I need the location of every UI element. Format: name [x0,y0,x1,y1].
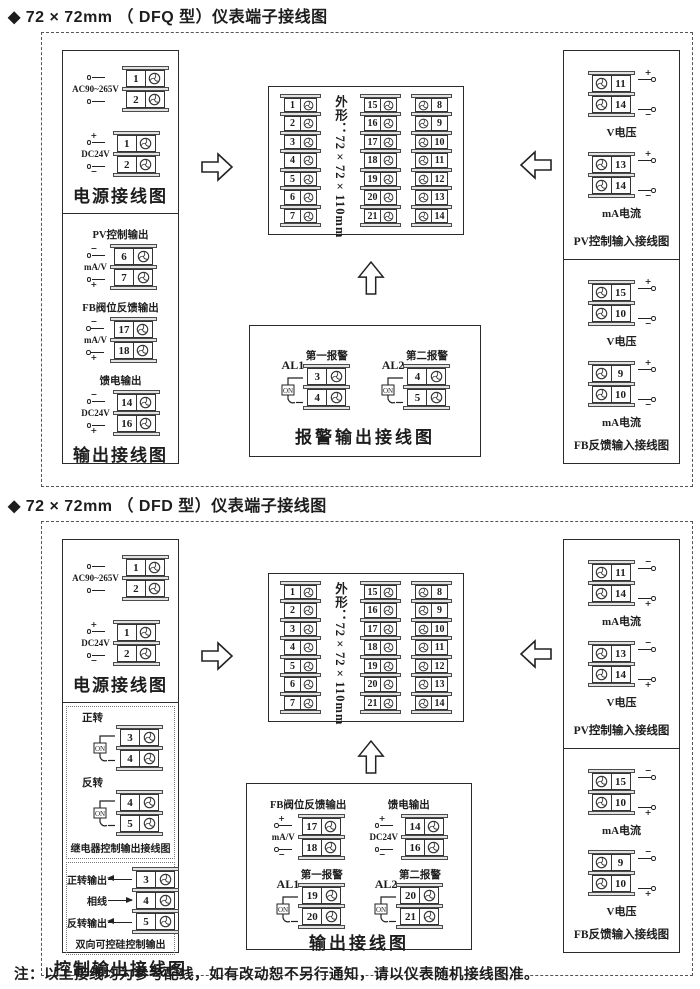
polarity-terminal-icon: − [87,249,105,261]
wiring-group: 910+−mA电流 [588,361,656,430]
screw-terminal-icon [380,153,397,168]
screw-terminal-icon [300,116,317,131]
terminal-end-bar [588,683,635,687]
terminal-cell: 13 [415,677,448,692]
polarity-mark: + [379,815,386,823]
right-panel: 1114−+mA电流1314−+V电压PV控制输入接线图 1510−+mA电流9… [563,539,680,953]
screw-terminal-icon [145,91,165,108]
polarity-terminal-icon: + [638,882,656,894]
terminal-number: 2 [284,603,301,618]
wiring-group: 1114−+mA电流 [588,560,656,629]
alarm-name: AL1 [277,877,300,892]
screw-terminal-icon [300,190,317,205]
terminal-cell: 8 [415,585,448,600]
arrow-left-icon [519,149,553,181]
terminal-cell: 1 [117,135,156,152]
screw-terminal-icon [415,190,432,205]
arrow-up-icon [356,738,386,776]
group-title: 正转 [82,710,103,725]
screw-terminal-icon [136,394,156,411]
screw-terminal-icon [321,839,341,856]
section-frame: AC90~265V12+DC24V−12电源接线图 正转ON34反转ON45继电… [41,521,693,976]
screw-terminal-icon [139,794,159,811]
terminal-cell: 10 [592,386,631,403]
group-caption: V电压 [607,694,637,710]
svg-text:ON: ON [376,906,386,914]
terminal-number: 9 [431,603,448,618]
panel-caption: 电源接线图 [73,182,168,207]
relay-group: 正转ON34 [78,710,163,771]
screw-terminal-icon [136,624,156,641]
group-title: PV控制输出 [93,227,149,242]
polarity-mark: + [645,809,652,817]
terminal-number: 2 [117,156,137,173]
terminal-block: 2021 [396,883,443,929]
polarity-terminal-icon [87,560,105,572]
terminal-block: 34 [303,364,350,410]
group-label: DC24V [81,638,110,648]
power-wiring-panel: AC90~265V12+DC24V−12电源接线图 [63,540,178,703]
screw-terminal-icon [155,913,175,930]
terminal-cell: 16 [364,116,397,131]
terminal-cell: 5 [284,659,317,674]
polarity-mark: − [645,848,652,856]
polarity-terminal-icon [87,95,105,107]
polarity-mark: + [645,150,652,158]
terminal-number: 18 [114,342,134,359]
terminal-end-bar [303,406,350,410]
terminal-number: 14 [611,96,631,113]
terminal-cell: 2 [284,603,317,618]
terminal-cell: 3 [120,729,159,746]
terminal-end-bar [588,892,635,896]
screw-terminal-icon [139,750,159,767]
arrow-right-icon [108,900,132,901]
terminal-cell: 1 [284,585,317,600]
terminal-number: 1 [284,585,301,600]
wiring-group: 1510+−V电压 [588,280,656,349]
terminal-cell: 14 [592,666,631,683]
terminal-number: 20 [302,908,322,925]
on-switch-icon: ON [380,374,404,407]
terminal-cell: 2 [126,91,165,108]
scr-label: 正转输出 [67,872,107,887]
screw-terminal-icon [133,321,153,338]
terminal-cell: 4 [307,389,346,406]
terminal-number: 17 [114,321,134,338]
screw-terminal-icon [592,564,612,581]
terminal-cell: 14 [592,585,631,602]
terminal-number: 17 [364,622,381,637]
screw-terminal-icon [380,172,397,187]
terminal-number: 14 [405,818,425,835]
polarity-mark: − [91,657,98,665]
screw-terminal-icon [380,622,397,637]
terminal-cell: 11 [415,153,448,168]
terminal-number: 10 [611,875,631,892]
screw-terminal-icon [426,368,446,385]
terminal-layout-block: 1234567外形：72×72×110mm1516171819202189101… [268,86,464,235]
terminal-cell: 11 [592,564,631,581]
polarity-terminal-icon: − [87,160,105,172]
terminal-cell: 21 [364,209,397,224]
terminal-block: 1234567 [280,581,321,715]
terminal-block: 15161718192021 [360,94,401,228]
terminal-cell: 9 [592,854,631,871]
screw-terminal-icon [380,659,397,674]
polarity-terminal-icon: + [638,801,656,813]
terminal-cell: 5 [136,913,175,930]
wiring-group: FB阀位反馈输出+mA/V−1718 [270,797,346,860]
screw-terminal-icon [145,70,165,87]
terminal-cell: 3 [284,622,317,637]
panel-caption: 电源接线图 [73,671,168,696]
wiring-group: 1114+−V电压 [588,71,656,140]
panel-caption: 继电器控制输出接线图 [71,840,171,855]
terminal-number: 16 [405,839,425,856]
arrow-left-icon [519,638,553,670]
terminal-cell: 13 [415,190,448,205]
alarm-name: AL1 [282,358,305,373]
group-title: 第二报警 [399,867,441,882]
terminal-number: 4 [284,640,301,655]
group-title: 反转 [82,775,103,790]
polarity-terminal-icon: − [87,649,105,661]
screw-terminal-icon [592,773,612,790]
terminal-end-bar [411,223,452,227]
terminal-cell: 21 [400,908,439,925]
section-dfd: ◆ 72 × 72mm （ DFD 型）仪表端子接线图 AC90~265V12+… [0,492,700,976]
terminal-number: 2 [117,645,137,662]
screw-terminal-icon [592,75,612,92]
terminal-cell: 7 [284,209,317,224]
terminal-cell: 6 [114,248,153,265]
terminal-number: 7 [114,269,134,286]
screw-terminal-icon [300,209,317,224]
terminal-block: 891011121314 [411,94,452,228]
panel-caption: 输出接线图 [309,929,409,954]
terminal-number: 16 [364,116,381,131]
screw-terminal-icon [415,135,432,150]
screw-terminal-icon [136,135,156,152]
on-switch-icon: ON [373,893,397,926]
polarity-terminal-icon: + [87,273,105,285]
screw-terminal-icon [139,729,159,746]
output-wiring-box: FB阀位反馈输出+mA/V−1718馈电输出+DC24V−1416AL1ON第一… [246,783,472,950]
panel-caption: 输出接线图 [73,441,168,466]
section-title: ◆ 72 × 72mm （ DFQ 型）仪表端子接线图 [8,3,700,27]
wiring-group: 1314+−mA电流 [588,152,656,221]
terminal-end-bar [403,406,450,410]
screw-terminal-icon [415,640,432,655]
right-panel: 1114+−V电压1314+−mA电流PV控制输入接线图 1510+−V电压91… [563,50,680,464]
terminal-number: 19 [364,659,381,674]
terminal-block: 1718 [298,814,345,860]
terminal-number: 1 [126,559,146,576]
terminal-end-bar [588,602,635,606]
polarity-mark: − [645,111,652,119]
terminal-number: 11 [611,564,631,581]
terminal-number: 13 [431,677,448,692]
terminal-cell: 6 [284,677,317,692]
terminal-cell: 10 [592,305,631,322]
scr-row: 相线 [62,893,132,908]
relay-output-subbox: 正转ON34反转ON45继电器控制输出接线图 [66,706,175,859]
screw-terminal-icon [415,603,432,618]
fb-input-panel: 1510+−V电压910+−mA电流FB反馈输入接线图 [564,260,679,463]
terminal-end-bar [360,223,401,227]
terminal-cell: 2 [117,645,156,662]
group-label: DC24V [81,408,110,418]
group-caption: V电压 [607,124,637,140]
terminal-number: 10 [611,305,631,322]
terminal-cell: 10 [592,875,631,892]
terminal-number: 11 [431,640,448,655]
terminal-number: 4 [407,368,427,385]
polarity-mark: + [645,681,652,689]
polarity-mark: − [91,391,98,399]
terminal-number: 14 [611,585,631,602]
terminal-end-bar [122,597,169,601]
terminal-number: 9 [431,116,448,131]
terminal-number: 10 [431,135,448,150]
terminal-cell: 8 [415,98,448,113]
terminal-block: 45 [403,364,450,410]
terminal-cell: 14 [117,394,156,411]
terminal-cell: 1 [117,624,156,641]
screw-terminal-icon [380,98,397,113]
terminal-block: 345 [132,867,179,934]
terminal-number: 20 [400,887,420,904]
polarity-terminal-icon: + [638,673,656,685]
terminal-block: 1920 [298,883,345,929]
terminal-number: 5 [284,172,301,187]
wiring-group: FB阀位反馈输出−mA/V+1718 [82,300,158,363]
polarity-mark: − [90,318,97,326]
group-title: 第一报警 [301,867,343,882]
wiring-group: AC90~265V12 [72,66,169,112]
screw-terminal-icon [380,209,397,224]
terminal-number: 14 [431,696,448,711]
terminal-cell: 9 [592,365,631,382]
svg-text:ON: ON [95,745,105,753]
scr-row: 正转输出 [62,872,132,887]
terminal-number: 8 [431,585,448,600]
terminal-end-bar [588,403,635,407]
screw-terminal-icon [380,696,397,711]
terminal-cell: 10 [415,135,448,150]
power-wiring-panel: AC90~265V12+DC24V−12电源接线图 [63,51,178,214]
terminal-cell: 5 [284,172,317,187]
shape-size-label: 外形：72×72×110mm [331,95,350,227]
terminal-end-bar [411,710,452,714]
group-caption: V电压 [607,903,637,919]
screw-terminal-icon [592,645,612,662]
screw-terminal-icon [133,342,153,359]
terminal-number: 19 [302,887,322,904]
polarity-mark: + [91,281,98,289]
terminal-number: 4 [120,794,140,811]
screw-terminal-icon [415,153,432,168]
polarity-terminal-icon: − [638,562,656,574]
terminal-cell: 1 [126,70,165,87]
screw-terminal-icon [380,640,397,655]
terminal-number: 16 [117,415,137,432]
terminal-number: 3 [120,729,140,746]
terminal-number: 4 [120,750,140,767]
screw-terminal-icon [136,156,156,173]
terminal-block: 1314 [588,641,635,687]
terminal-block: 12 [113,131,160,177]
polarity-terminal-icon: − [86,322,104,334]
polarity-mark: − [645,558,652,566]
section-title: ◆ 72 × 72mm （ DFD 型）仪表端子接线图 [8,492,700,516]
terminal-cell: 5 [407,389,446,406]
terminal-block: 34 [116,725,163,771]
screw-terminal-icon [592,96,612,113]
footer-note: 注：以上接线均为参考配线，如有改动恕不另行通知，请以仪表随机接线图准。 [14,963,539,984]
group-label: mA/V [84,262,107,272]
screw-terminal-icon [592,365,612,382]
screw-terminal-icon [300,603,317,618]
wiring-group: 1314−+V电压 [588,641,656,710]
terminal-number: 5 [407,389,427,406]
terminal-block: 910 [588,850,635,896]
group-caption: mA电流 [602,822,641,838]
terminal-end-bar [401,856,448,860]
terminal-block: 12 [122,66,169,112]
terminal-end-bar [113,173,160,177]
group-title: FB阀位反馈输出 [82,300,158,315]
terminal-cell: 17 [114,321,153,338]
terminal-cell: 10 [415,622,448,637]
on-switch-icon: ON [275,893,299,926]
terminal-cell: 14 [415,209,448,224]
polarity-mark: − [645,192,652,200]
polarity-terminal-icon [87,584,105,596]
screw-terminal-icon [155,892,175,909]
terminal-cell: 18 [364,640,397,655]
terminal-number: 4 [136,892,156,909]
terminal-cell: 2 [284,116,317,131]
polarity-terminal-icon: + [638,154,656,166]
polarity-terminal-icon: − [274,843,292,855]
terminal-number: 3 [136,871,156,888]
terminal-number: 1 [117,624,137,641]
screw-terminal-icon [592,156,612,173]
wiring-group: 馈电输出−DC24V+1416 [81,373,160,436]
terminal-cell: 18 [114,342,153,359]
terminal-cell: 4 [136,892,175,909]
terminal-cell: 14 [592,96,631,113]
group-label: AC90~265V [72,573,119,583]
polarity-terminal-icon: − [638,771,656,783]
terminal-cell: 1 [126,559,165,576]
terminal-number: 5 [120,815,140,832]
polarity-mark: − [91,168,98,176]
terminal-cell: 14 [415,696,448,711]
polarity-terminal-icon: + [274,819,292,831]
polarity-terminal-icon: − [638,103,656,115]
terminal-number: 4 [284,153,301,168]
screw-terminal-icon [380,603,397,618]
on-switch-icon: ON [92,732,116,765]
terminal-number: 7 [284,209,301,224]
screw-terminal-icon [300,640,317,655]
terminal-number: 1 [117,135,137,152]
terminal-number: 15 [364,98,381,113]
relay-group: 反转ON45 [78,775,163,836]
group-label: DC24V [81,149,110,159]
screw-terminal-icon [415,209,432,224]
terminal-block: 1314 [588,152,635,198]
scr-output-subbox: 正转输出相线反转输出345双向可控硅控制输出 [66,862,175,955]
terminal-number: 6 [284,677,301,692]
terminal-end-bar [122,108,169,112]
terminal-end-bar [110,359,157,363]
terminal-number: 20 [364,677,381,692]
pv-input-panel: 1114+−V电压1314+−mA电流PV控制输入接线图 [564,51,679,260]
terminal-number: 15 [364,585,381,600]
terminal-block: 1234567 [280,94,321,228]
terminal-number: 18 [364,153,381,168]
polarity-mark: + [91,427,98,435]
polarity-terminal-icon [87,71,105,83]
screw-terminal-icon [300,135,317,150]
polarity-mark: − [379,851,386,859]
group-title: 第一报警 [306,348,348,363]
terminal-number: 6 [114,248,134,265]
terminal-block: 1718 [110,317,157,363]
group-label: mA/V [84,335,107,345]
alarm-group: AL2ON第二报警45 [380,348,451,410]
alarm-group: AL2ON第二报警2021 [373,867,444,929]
terminal-number: 17 [364,135,381,150]
terminal-end-bar [588,194,635,198]
panel-caption: PV控制输入接线图 [574,722,670,738]
terminal-end-bar [588,113,635,117]
polarity-mark: + [645,278,652,286]
terminal-block: 1510 [588,769,635,815]
screw-terminal-icon [155,871,175,888]
terminal-end-bar [116,832,163,836]
terminal-cell: 4 [120,750,159,767]
screw-terminal-icon [415,585,432,600]
screw-terminal-icon [136,645,156,662]
screw-terminal-icon [300,659,317,674]
wiring-group: PV控制输出−mA/V+67 [84,227,157,290]
terminal-number: 2 [126,91,146,108]
terminal-cell: 7 [114,269,153,286]
terminal-cell: 13 [592,645,631,662]
terminal-number: 13 [611,156,631,173]
terminal-cell: 16 [117,415,156,432]
polarity-mark: − [645,320,652,328]
terminal-number: 13 [611,645,631,662]
polarity-mark: − [645,639,652,647]
screw-terminal-icon [145,559,165,576]
panel-caption: FB反馈输入接线图 [574,437,669,453]
screw-terminal-icon [424,839,444,856]
wiring-group: 910−+V电压 [588,850,656,919]
terminal-end-bar [110,286,157,290]
svg-text:ON: ON [277,906,287,914]
terminal-number: 18 [364,640,381,655]
screw-terminal-icon [300,622,317,637]
terminal-cell: 14 [405,818,444,835]
arrow-up-icon [356,259,386,297]
terminal-cell: 4 [284,640,317,655]
